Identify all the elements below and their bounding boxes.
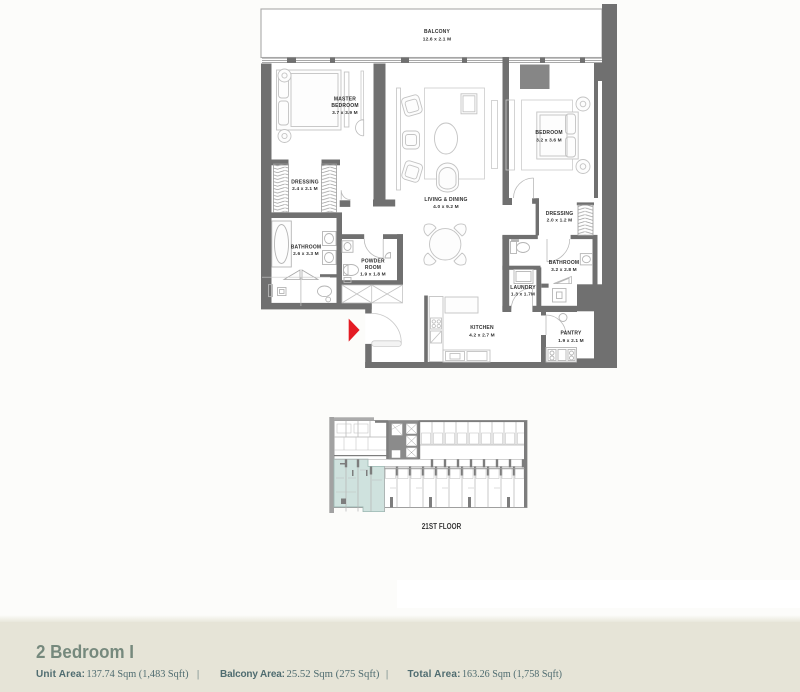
- svg-text:163.26 Sqm (1,758 Sqft): 163.26 Sqm (1,758 Sqft): [462, 669, 562, 680]
- svg-text:BATHROOM: BATHROOM: [549, 260, 580, 266]
- svg-text:2 Bedroom I: 2 Bedroom I: [36, 641, 134, 662]
- svg-text:25.52 Sqm (275 Sqft): 25.52 Sqm (275 Sqft): [287, 669, 381, 680]
- svg-text:DRESSING: DRESSING: [291, 179, 319, 185]
- svg-text:Unit Area:: Unit Area:: [36, 669, 85, 680]
- svg-text:|: |: [386, 669, 388, 680]
- svg-text:POWDER: POWDER: [361, 258, 385, 264]
- svg-text:Balcony Area:: Balcony Area:: [220, 669, 285, 680]
- svg-text:1.9 x 2.1 M: 1.9 x 2.1 M: [558, 338, 584, 344]
- svg-text:1.3 x 1.7M: 1.3 x 1.7M: [511, 292, 535, 298]
- svg-text:21ST FLOOR: 21ST FLOOR: [422, 521, 462, 531]
- svg-text:4.0 x 9.2 M: 4.0 x 9.2 M: [433, 204, 459, 210]
- svg-text:12.6 x 2.1 M: 12.6 x 2.1 M: [423, 36, 451, 42]
- svg-text:3.2 x 3.6 M: 3.2 x 3.6 M: [536, 138, 562, 144]
- svg-text:ROOM: ROOM: [365, 265, 381, 271]
- svg-text:BEDROOM: BEDROOM: [535, 130, 562, 136]
- svg-text:Total Area:: Total Area:: [408, 669, 461, 680]
- svg-text:BATHROOM: BATHROOM: [291, 245, 322, 251]
- svg-text:PANTRY: PANTRY: [560, 330, 582, 336]
- svg-text:2.4 x 2.1 M: 2.4 x 2.1 M: [292, 186, 318, 192]
- svg-text:3.2 x 2.8 M: 3.2 x 2.8 M: [551, 267, 577, 273]
- svg-text:|: |: [197, 669, 199, 680]
- svg-text:BEDROOM: BEDROOM: [331, 103, 358, 109]
- svg-text:DRESSING: DRESSING: [546, 211, 574, 217]
- svg-text:LIVING & DINING: LIVING & DINING: [424, 197, 467, 203]
- svg-text:MASTER: MASTER: [334, 97, 356, 103]
- svg-text:3.7 x 3.9 M: 3.7 x 3.9 M: [332, 110, 358, 116]
- svg-text:BALCONY: BALCONY: [424, 29, 450, 35]
- svg-text:LAUNDRY: LAUNDRY: [510, 285, 536, 291]
- svg-text:KITCHEN: KITCHEN: [470, 325, 494, 331]
- svg-text:2.6 x 3.3 M: 2.6 x 3.3 M: [293, 251, 319, 257]
- svg-text:1.9 x 1.8 M: 1.9 x 1.8 M: [360, 271, 386, 277]
- svg-text:137.74 Sqm (1,483 Sqft): 137.74 Sqm (1,483 Sqft): [87, 669, 189, 680]
- svg-text:4.2 x 2.7 M: 4.2 x 2.7 M: [469, 333, 495, 339]
- svg-text:2.0 x 1.2 M: 2.0 x 1.2 M: [547, 218, 573, 224]
